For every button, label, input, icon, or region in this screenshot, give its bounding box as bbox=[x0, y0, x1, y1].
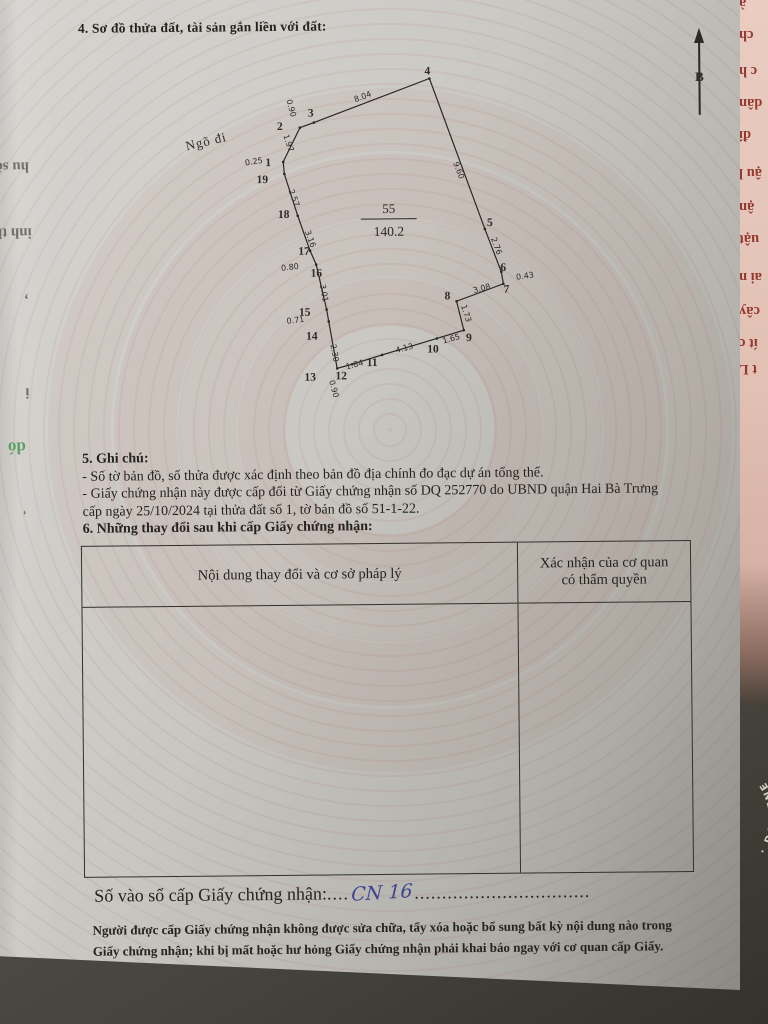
dotted-leader: ................................ bbox=[414, 881, 590, 903]
certificate-photo: à ch c h dân đi ậu l ận uật ai n cây ít … bbox=[0, 0, 768, 1024]
vertex-label-11: 11 bbox=[367, 357, 378, 369]
edge-length-label: 1.97 bbox=[281, 133, 295, 153]
vertex-label-1: 1 bbox=[265, 157, 271, 169]
vertex-label-18: 18 bbox=[278, 209, 290, 221]
amendments-table: Nội dung thay đổi và cơ sở pháp lý Xác n… bbox=[81, 540, 694, 878]
footer-notice: Người được cấp Giấy chứng nhận không đượ… bbox=[92, 915, 716, 962]
edge-length-label: 0.43 bbox=[515, 270, 534, 282]
vertex-label-10: 10 bbox=[427, 343, 439, 355]
red-page-text-fragment: c h bbox=[739, 62, 757, 79]
red-page-text-fragment: cây bbox=[739, 302, 760, 319]
vertex-label-17: 17 bbox=[298, 246, 310, 258]
vertex-label-9: 9 bbox=[466, 332, 472, 344]
north-arrow: B bbox=[694, 28, 705, 115]
table-body-row bbox=[82, 602, 693, 877]
vertex-label-4: 4 bbox=[424, 65, 430, 77]
fraction-bar bbox=[361, 219, 417, 220]
notes-section: 5. Ghi chú: - Số tờ bản đồ, số thửa được… bbox=[82, 445, 665, 539]
edge-length-label: 3.08 bbox=[472, 282, 492, 295]
registry-label: Số vào sổ cấp Giấy chứng nhận: bbox=[94, 884, 327, 906]
parcel-diagram: 1 2 3 4 5 6 7 8 9 10 11 12 13 14 15 16 1… bbox=[156, 19, 720, 424]
col2-header-line1: Xác nhận của cơ quan bbox=[540, 554, 669, 572]
col2-header-text: Xác nhận của cơ quan có thẩm quyền bbox=[540, 554, 669, 589]
red-page-text-fragment: ậu l bbox=[739, 164, 762, 181]
table-header-content: Nội dung thay đổi và cơ sở pháp lý bbox=[82, 543, 519, 607]
vertex-label-2: 2 bbox=[277, 121, 283, 133]
red-page-text-fragment: ch bbox=[739, 26, 754, 43]
showthrough-text: i bbox=[25, 383, 29, 400]
showthrough-text: inh th bbox=[0, 223, 32, 240]
edge-length-label: 3.01 bbox=[318, 283, 330, 302]
edge-length-label: 0.90 bbox=[284, 98, 297, 118]
parcel-number: 55 bbox=[382, 201, 395, 216]
red-page-text-fragment: ít c bbox=[739, 334, 758, 351]
registry-number-line: Số vào sổ cấp Giấy chứng nhận:....CN 16.… bbox=[94, 880, 590, 907]
underlying-red-page: à ch c h dân đi ậu l ận uật ai n cây ít … bbox=[736, 0, 768, 705]
vertex-label-7: 7 bbox=[504, 284, 510, 296]
showthrough-text: hu số bbox=[0, 157, 29, 174]
edge-length-label: 0.80 bbox=[281, 262, 300, 273]
edge-length-label: 9.60 bbox=[451, 160, 466, 180]
showthrough-text-green: dó bbox=[8, 437, 26, 457]
edge-length-label: 4.13 bbox=[395, 342, 415, 355]
table-body-cell-confirmation bbox=[518, 602, 693, 873]
edge-length-label: 1.65 bbox=[441, 332, 461, 345]
red-page-text-fragment: đi bbox=[739, 126, 751, 143]
red-page-text-fragment: uật bbox=[739, 230, 759, 247]
table-header-row: Nội dung thay đổi và cơ sở pháp lý Xác n… bbox=[82, 541, 691, 608]
edge-length-label: 0.25 bbox=[244, 156, 263, 168]
north-symbol: B bbox=[695, 69, 704, 84]
col1-header-text: Nội dung thay đổi và cơ sở pháp lý bbox=[198, 565, 402, 584]
vertex-label-13: 13 bbox=[304, 372, 316, 384]
vertex-label-16: 16 bbox=[310, 268, 322, 280]
table-body-cell-content bbox=[82, 604, 521, 877]
red-page-text-fragment: ận bbox=[739, 198, 754, 215]
parcel-area: 140.2 bbox=[374, 224, 405, 239]
certificate-page: 4. Sơ đồ thửa đất, tài sản gắn liền với … bbox=[0, 0, 740, 990]
page-content: 4. Sơ đồ thửa đất, tài sản gắn liền với … bbox=[0, 0, 745, 994]
vertex-label-19: 19 bbox=[257, 174, 269, 186]
north-arrow-head bbox=[694, 28, 704, 43]
edge-length-label: 1.84 bbox=[345, 358, 365, 371]
showthrough-text: ' bbox=[22, 499, 26, 516]
handwritten-registry-number: CN 16 bbox=[351, 880, 413, 906]
vertex-label-5: 5 bbox=[487, 217, 493, 229]
dotted-leader: .... bbox=[327, 883, 349, 903]
road-label: Ngõ đi bbox=[184, 129, 228, 153]
table-header-confirmation: Xác nhận của cơ quan có thẩm quyền bbox=[518, 541, 691, 603]
edge-length-label: 0.71 bbox=[286, 315, 305, 326]
red-page-text-fragment: dân bbox=[739, 94, 762, 111]
vertex-label-8: 8 bbox=[445, 290, 451, 302]
red-page-text-fragment: t L bbox=[739, 360, 757, 377]
note-line-2: - Giấy chứng nhận này được cấp đổi từ Gi… bbox=[82, 480, 664, 521]
vertex-label-3: 3 bbox=[308, 108, 314, 120]
red-page-text-fragment: ai n bbox=[739, 268, 762, 285]
showthrough-text: , bbox=[24, 291, 28, 308]
red-page-text-fragment: à bbox=[739, 0, 746, 11]
col2-header-line2: có thẩm quyền bbox=[540, 571, 669, 589]
vertex-label-6: 6 bbox=[500, 262, 506, 274]
edge-length-label: 2.30 bbox=[328, 343, 340, 362]
edge-length-label: 2.57 bbox=[287, 188, 302, 208]
vertex-label-14: 14 bbox=[306, 331, 318, 343]
